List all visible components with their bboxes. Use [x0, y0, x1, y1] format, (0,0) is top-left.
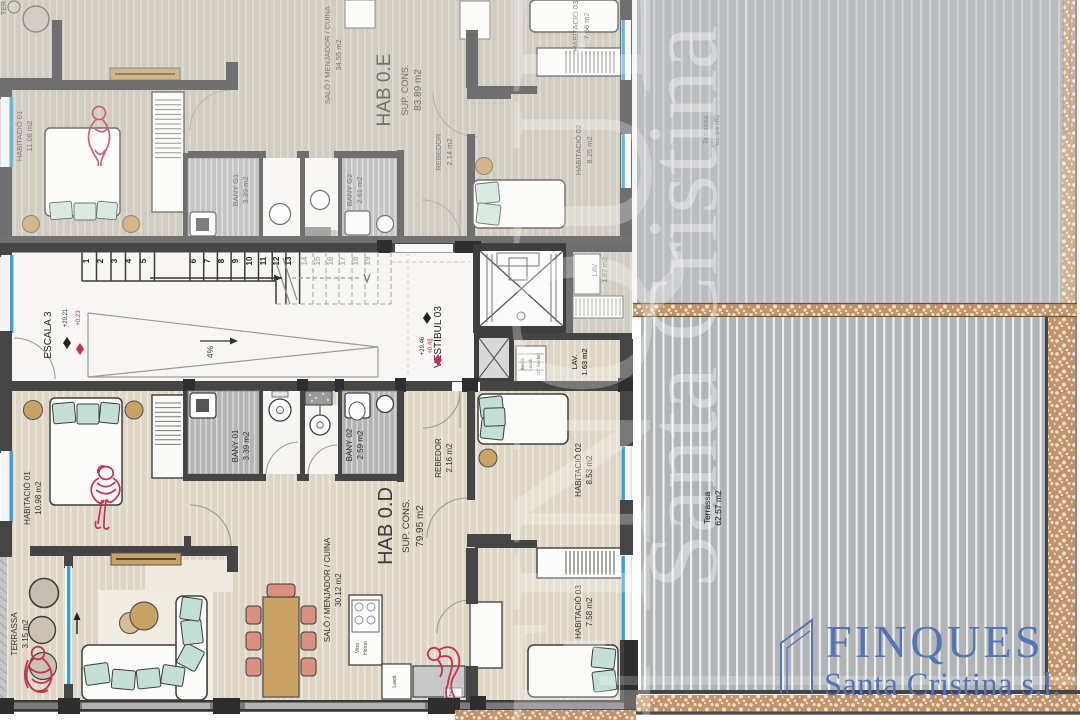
svg-text:4: 4 [124, 258, 133, 263]
svg-text:11: 11 [259, 256, 268, 265]
svg-text:18: 18 [351, 256, 360, 265]
svg-text:+29.21: +29.21 [63, 308, 69, 327]
svg-text:2.16 m2: 2.16 m2 [445, 443, 454, 472]
svg-text:+29.46: +29.46 [420, 336, 426, 355]
svg-text:TERRASSA: TERRASSA [10, 612, 19, 656]
svg-text:1: 1 [82, 258, 91, 263]
svg-text:+0.48: +0.48 [428, 338, 434, 354]
svg-text:16: 16 [326, 256, 335, 265]
svg-text:HABITACIÓ 01: HABITACIÓ 01 [23, 471, 32, 525]
svg-text:ESCALA 3: ESCALA 3 [43, 311, 54, 359]
svg-text:Lavpl.: Lavpl. [392, 674, 398, 687]
svg-text:15: 15 [313, 256, 322, 265]
svg-text:3: 3 [110, 258, 119, 263]
svg-text:1.63 m2: 1.63 m2 [580, 348, 589, 375]
svg-text:10: 10 [245, 256, 254, 265]
svg-text:SALÓ / MENJADOR / CUINA: SALÓ / MENJADOR / CUINA [323, 537, 332, 642]
svg-text:7: 7 [203, 258, 212, 263]
svg-text:2: 2 [96, 258, 105, 263]
svg-text:Santa Cristina s.l.: Santa Cristina s.l. [824, 667, 1061, 703]
svg-text:10.98 m2: 10.98 m2 [34, 481, 43, 515]
svg-text:FINQUES: FINQUES [826, 616, 1044, 667]
svg-text:4%: 4% [205, 345, 215, 358]
svg-text:BANY 02: BANY 02 [345, 428, 354, 461]
svg-text:Terrassa: Terrassa [702, 491, 712, 524]
svg-text:19: 19 [363, 256, 372, 265]
svg-text:5: 5 [139, 258, 148, 263]
svg-text:Vitro: Vitro [355, 643, 361, 653]
svg-text:BANY 01: BANY 01 [231, 429, 240, 462]
svg-text:79.95 m2: 79.95 m2 [415, 505, 426, 547]
svg-text:6: 6 [189, 258, 198, 263]
svg-text:LAV.: LAV. [570, 354, 579, 369]
svg-text:62.57 m2: 62.57 m2 [713, 490, 723, 526]
svg-text:Horno: Horno [363, 641, 369, 655]
svg-text:+0.23: +0.23 [76, 310, 82, 326]
svg-text:17: 17 [338, 256, 347, 265]
svg-text:14: 14 [300, 256, 309, 265]
svg-text:30.12 m2: 30.12 m2 [334, 573, 343, 607]
svg-text:REBEDOR: REBEDOR [434, 438, 443, 478]
svg-text:HAB 0.D: HAB 0.D [375, 487, 397, 565]
svg-text:3.39 m2: 3.39 m2 [242, 431, 251, 460]
svg-text:9: 9 [231, 258, 240, 263]
svg-text:8: 8 [217, 258, 226, 263]
svg-text:SUP. CONS.: SUP. CONS. [401, 499, 412, 553]
svg-text:2.59 m2: 2.59 m2 [356, 430, 365, 459]
